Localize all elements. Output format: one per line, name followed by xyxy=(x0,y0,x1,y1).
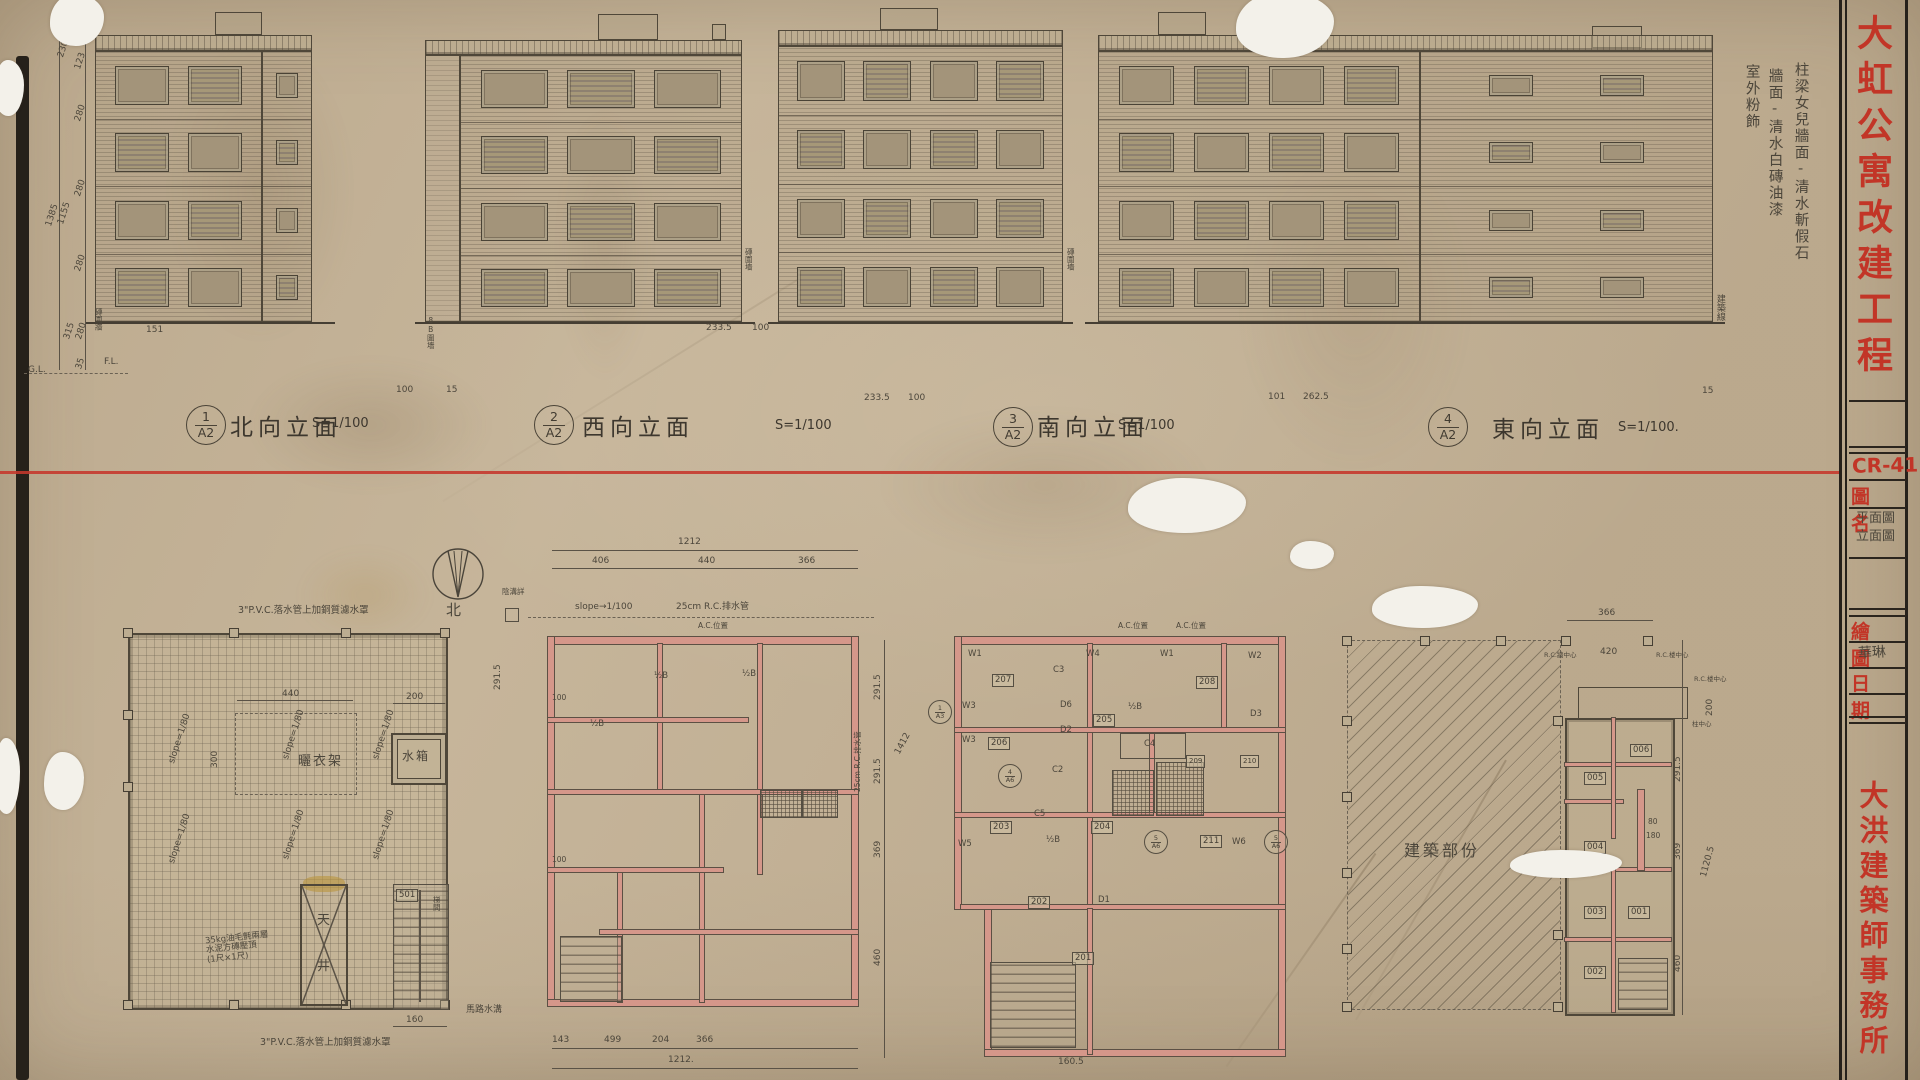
dim-text: 233.5 xyxy=(706,324,732,334)
wall-seg xyxy=(548,868,723,872)
column xyxy=(229,1000,239,1010)
door-label: D3 xyxy=(1250,710,1262,719)
bathroom xyxy=(802,790,838,818)
dim-text: 151 xyxy=(146,326,163,336)
section-mark: 1 A3 xyxy=(928,700,952,724)
window xyxy=(188,201,242,240)
dim-line xyxy=(393,703,445,704)
column xyxy=(123,628,133,638)
window xyxy=(1600,210,1644,231)
wall-type-label: ½B xyxy=(1128,703,1142,712)
parapet xyxy=(425,40,742,55)
mark-number: 1 xyxy=(195,410,217,425)
titleblock-line xyxy=(1849,446,1906,448)
facade xyxy=(460,55,742,322)
window xyxy=(797,267,845,306)
elevation-mark-1: 1 A2 xyxy=(186,405,226,445)
ac-note: A.C.位置 xyxy=(698,622,728,630)
paper-tear xyxy=(44,752,84,810)
section-sheet: A3 xyxy=(936,713,945,720)
ground-line xyxy=(415,322,755,324)
bathroom xyxy=(1112,770,1154,816)
window xyxy=(567,203,634,241)
wall-type-label: ½B xyxy=(742,670,756,679)
window-label: W4 xyxy=(1086,650,1100,659)
facade xyxy=(1098,51,1420,322)
drain-note: 25cm R.C.排水管 xyxy=(676,603,749,613)
dim-text: 100 xyxy=(552,856,566,864)
roof-note-top: 3"P.V.C.落水管上加銅質濾水罩 xyxy=(238,606,369,616)
window xyxy=(188,133,242,172)
wall-seg xyxy=(955,637,1285,644)
floor-level-label: F.L. xyxy=(104,358,118,368)
paper-tear xyxy=(1372,586,1478,628)
dim-line xyxy=(552,1048,858,1049)
window xyxy=(996,61,1044,100)
ground-line xyxy=(1085,322,1725,324)
window xyxy=(930,199,978,238)
window xyxy=(276,275,297,300)
window xyxy=(797,130,845,169)
brick-fence-label: 磚圍牆 xyxy=(94,308,102,331)
closet-label: C5 xyxy=(1034,810,1045,819)
dim-text: 200 xyxy=(1706,699,1716,716)
window xyxy=(654,136,721,174)
facade-floor xyxy=(96,52,261,120)
window xyxy=(996,267,1044,306)
wall-seg xyxy=(1088,909,1092,1054)
elevation-north xyxy=(95,12,312,322)
room-chip: 204 xyxy=(1091,821,1113,834)
dim-line xyxy=(393,1026,447,1027)
window xyxy=(1269,201,1323,240)
drawing-sheet: 107 123 230 280 280 280 1385 1155 315 28… xyxy=(0,0,1920,1080)
window xyxy=(481,136,548,174)
column xyxy=(123,782,133,792)
column xyxy=(440,628,450,638)
eave-note: slope→1/100 xyxy=(575,603,632,613)
room-chip: 203 xyxy=(990,821,1012,834)
dim-text: 101 xyxy=(1268,393,1285,403)
column xyxy=(1496,636,1506,646)
elevation-scale: S=1/100 xyxy=(775,418,832,433)
column xyxy=(229,628,239,638)
plan3-stair xyxy=(990,962,1076,1048)
column xyxy=(1342,716,1352,726)
column xyxy=(123,1000,133,1010)
dim-text: 406 xyxy=(592,557,609,567)
plan2-stair xyxy=(560,936,622,1002)
wall-seg xyxy=(1565,763,1671,766)
wall-seg xyxy=(955,728,1285,732)
facade-floor xyxy=(1099,187,1419,255)
window xyxy=(1119,268,1173,307)
room-chip: 202 xyxy=(1028,896,1050,909)
window xyxy=(654,269,721,307)
dim-text: 460 xyxy=(874,949,884,966)
facade xyxy=(95,51,262,322)
room-chip: 210 xyxy=(1240,755,1259,768)
roof-structure xyxy=(1158,12,1206,35)
window xyxy=(115,268,169,307)
dim-text: 460 xyxy=(1674,955,1684,972)
roof-structure xyxy=(880,8,938,30)
titleblock-line xyxy=(1849,716,1906,718)
drawing-name-label: 圖名 xyxy=(1851,482,1903,536)
dim-text: 1120.5 xyxy=(1700,846,1718,879)
dim-text: 300 xyxy=(211,751,221,768)
elevation-title-east: 東向立面 xyxy=(1492,410,1604,444)
dim-text: 369 xyxy=(874,841,884,858)
window xyxy=(115,133,169,172)
closet-label: C4 xyxy=(1144,740,1155,749)
date-label: 日期 xyxy=(1851,669,1903,723)
dim-text: 440 xyxy=(698,557,715,567)
mark-number: 2 xyxy=(543,410,565,425)
facade-floor xyxy=(263,255,311,322)
column xyxy=(1342,868,1352,878)
plan5-stair xyxy=(1618,958,1668,1010)
drawing-number: CR-411 xyxy=(1852,453,1920,476)
dim-text: 280 xyxy=(75,322,90,341)
wall-type-label: ½B xyxy=(1046,836,1060,845)
wall-seg xyxy=(955,637,961,909)
dim-text: 420 xyxy=(1600,648,1617,658)
window xyxy=(863,130,911,169)
window xyxy=(276,73,297,98)
window xyxy=(276,140,297,165)
wall-seg xyxy=(985,1050,1285,1056)
elevation-mark-4: 4 A2 xyxy=(1428,407,1468,447)
dim-text: 366 xyxy=(1598,609,1615,619)
mark-sheet: A2 xyxy=(546,426,563,440)
light-well xyxy=(300,884,348,1006)
dim-text: 366 xyxy=(696,1036,713,1046)
room-chip: 006 xyxy=(1630,744,1652,757)
window xyxy=(1344,268,1398,307)
wall-seg xyxy=(852,637,858,1005)
building-line-label: 建築線 xyxy=(1714,294,1724,321)
titleblock-border xyxy=(1905,0,1908,1080)
north-label: 北 xyxy=(446,602,461,619)
door-label: D6 xyxy=(1060,701,1072,710)
dim-text: 291.5 xyxy=(1674,756,1684,782)
wall-seg xyxy=(1612,718,1615,838)
wall-seg xyxy=(700,790,704,1002)
finish-note-1: 柱梁女兒牆面-清水斬假石 xyxy=(1792,62,1809,292)
eave-dash xyxy=(528,617,874,618)
road-gutter-label: 馬路水溝 xyxy=(466,1006,502,1016)
room-chip: 002 xyxy=(1584,966,1606,979)
window-label: W2 xyxy=(1248,652,1262,661)
rc-label: R.C.牆中心 xyxy=(1544,652,1576,659)
project-title: 大虹公寓改建工程 xyxy=(1853,14,1889,382)
dim-text: 100 xyxy=(552,694,566,702)
room-chip: 001 xyxy=(1628,906,1650,919)
paper-tear xyxy=(1128,478,1246,533)
facade-floor xyxy=(1421,52,1712,120)
column xyxy=(123,710,133,720)
gutter-detail-box xyxy=(505,608,519,622)
ac-note: A.C.位置 xyxy=(1118,622,1148,630)
dim-text: 233.5 xyxy=(864,394,890,404)
dim-text: 35 xyxy=(75,357,88,371)
ground-line xyxy=(85,322,335,324)
rc-label: R.C.楼中心 xyxy=(1694,676,1726,683)
window xyxy=(115,66,169,105)
titleblock-line xyxy=(1849,479,1906,481)
dim-text: 15 xyxy=(1702,387,1713,397)
column xyxy=(1420,636,1430,646)
dim-line xyxy=(59,20,60,370)
window xyxy=(276,208,297,233)
titleblock-border xyxy=(1839,0,1842,1080)
wall-seg xyxy=(548,637,858,644)
elevation-east xyxy=(1098,12,1713,322)
column xyxy=(1342,636,1352,646)
roof-structure xyxy=(712,24,726,40)
facade-floor xyxy=(461,189,741,256)
window xyxy=(996,199,1044,238)
column xyxy=(1342,944,1352,954)
facade-floor xyxy=(1099,120,1419,188)
facade-floor xyxy=(1421,255,1712,322)
facade xyxy=(778,46,1063,322)
wall-seg xyxy=(1222,644,1226,732)
dim-text: 1212 xyxy=(678,538,701,548)
window xyxy=(481,70,548,108)
mark-number: 3 xyxy=(1002,412,1024,427)
rear-wing xyxy=(1420,51,1713,322)
dim-text: 160 xyxy=(406,1016,423,1026)
facade-floor xyxy=(461,123,741,190)
window xyxy=(1269,133,1323,172)
window-label: W3 xyxy=(962,702,976,711)
ac-note: A.C.位置 xyxy=(1176,622,1206,630)
parapet xyxy=(1098,35,1713,51)
window xyxy=(1119,201,1173,240)
window xyxy=(1194,201,1248,240)
compass-icon xyxy=(432,548,484,600)
titleblock-line xyxy=(1849,693,1906,695)
window xyxy=(1489,75,1533,96)
facade-floor xyxy=(779,185,1062,254)
elevation-west xyxy=(425,14,742,322)
dim-text: 180 xyxy=(1646,832,1660,840)
roof-structure xyxy=(215,12,262,35)
dim-line xyxy=(552,1068,858,1069)
firm-name: 大洪建築師事務所 xyxy=(1857,780,1886,1060)
mark-sheet: A2 xyxy=(1440,428,1457,442)
facade-floor xyxy=(96,255,261,322)
dim-text: 100 xyxy=(752,324,769,334)
room-chip: 206 xyxy=(988,737,1010,750)
drain-note: 25cm R.C.排水管 xyxy=(854,731,862,792)
titleblock-line xyxy=(1849,507,1906,509)
drying-rack-label: 曬衣架 xyxy=(298,755,343,769)
drawn-by-signature: 華琳 xyxy=(1858,645,1887,662)
dim-text: 1212. xyxy=(668,1056,694,1066)
titleblock-line xyxy=(1849,608,1906,610)
dim-line xyxy=(85,20,86,370)
facade-floor xyxy=(1099,255,1419,322)
room-chip: 209 xyxy=(1186,755,1205,768)
dim-text: 280 xyxy=(74,179,89,198)
section-sheet: A6 xyxy=(1006,777,1015,784)
column xyxy=(1553,716,1563,726)
window xyxy=(1119,133,1173,172)
facade-floor xyxy=(461,256,741,322)
dim-text: 15 xyxy=(446,386,457,396)
room-chip: 211 xyxy=(1200,835,1222,848)
finish-note-2: 牆面-清水白磚油漆 xyxy=(1766,68,1783,268)
window xyxy=(1194,268,1248,307)
window xyxy=(930,130,978,169)
dim-line xyxy=(884,640,885,1058)
facade-floor xyxy=(263,187,311,255)
window-label: W5 xyxy=(958,840,972,849)
window xyxy=(481,269,548,307)
label-char: 圖名 xyxy=(1851,482,1903,536)
dim-text: 291.5 xyxy=(874,674,884,700)
elevation-title-west: 西向立面 xyxy=(582,408,694,442)
titleblock-line xyxy=(1849,722,1906,724)
window-label: W3 xyxy=(962,736,976,745)
wall-seg xyxy=(1638,790,1644,870)
facade-floor xyxy=(263,52,311,120)
facade-floor xyxy=(1099,52,1419,120)
window xyxy=(115,201,169,240)
col-center-label: 柱中心 xyxy=(1692,721,1712,728)
light-well-label: 井 xyxy=(317,960,330,974)
dim-text: 200 xyxy=(406,693,423,703)
closet-label: C2 xyxy=(1052,766,1063,775)
column xyxy=(1342,792,1352,802)
window xyxy=(1269,66,1323,105)
dim-line xyxy=(552,568,858,569)
side-wing xyxy=(425,55,460,322)
room-chip: 205 xyxy=(1093,714,1115,727)
window xyxy=(930,61,978,100)
room-chip: 201 xyxy=(1072,952,1094,965)
elevation-mark-3: 3 A2 xyxy=(993,407,1033,447)
dim-text: 369 xyxy=(1674,843,1684,860)
window xyxy=(1344,133,1398,172)
window xyxy=(1269,268,1323,307)
column xyxy=(341,628,351,638)
dim-text: 280 xyxy=(74,104,89,123)
dim-text: 123 xyxy=(74,52,89,71)
window xyxy=(654,203,721,241)
dim-text: 291.5 xyxy=(494,664,504,690)
paper-tear xyxy=(1290,541,1334,569)
elevation-scale: S=1/100 xyxy=(1118,418,1175,433)
light-well-label: 天 xyxy=(317,914,330,928)
door-label: D1 xyxy=(1098,896,1110,905)
titleblock-line xyxy=(1849,557,1906,559)
north-compass xyxy=(432,548,484,600)
binding-strip xyxy=(16,56,29,1080)
dim-text: 143 xyxy=(552,1036,569,1046)
titleblock-line xyxy=(1849,641,1906,643)
wall-seg xyxy=(1088,644,1092,906)
ground-level-label: G.L. xyxy=(28,366,46,376)
gl-dash xyxy=(24,373,128,374)
elevation-mark-2: 2 A2 xyxy=(534,405,574,445)
window xyxy=(1344,66,1398,105)
window xyxy=(930,267,978,306)
mark-sheet: A2 xyxy=(1005,428,1022,442)
wall-type-label: ½B xyxy=(590,720,604,729)
window xyxy=(1489,277,1533,298)
room-chip: 501 xyxy=(396,889,418,902)
window xyxy=(481,203,548,241)
wall-seg xyxy=(548,718,748,722)
dim-text: 291.5 xyxy=(874,758,884,784)
facade-floor xyxy=(263,120,311,188)
dim-text: 160.5 xyxy=(1058,1058,1084,1068)
closet-label: C3 xyxy=(1053,666,1064,675)
parapet xyxy=(778,30,1063,46)
demolition-hatch-area xyxy=(1347,640,1561,1010)
window xyxy=(1119,66,1173,105)
room-chip: 208 xyxy=(1196,676,1218,689)
fence-note: 磚圍墻 xyxy=(1066,248,1074,271)
facade-floor xyxy=(779,116,1062,185)
section-sheet: A6 xyxy=(1272,843,1281,850)
window xyxy=(1489,142,1533,163)
window xyxy=(567,136,634,174)
stair-tower xyxy=(262,51,312,322)
room-chip: 207 xyxy=(992,674,1014,687)
dim-text: 366 xyxy=(798,557,815,567)
dim-line xyxy=(1567,620,1653,621)
fence-note: 磚圍墻 xyxy=(744,248,752,271)
room-chip: 003 xyxy=(1584,906,1606,919)
window xyxy=(188,66,242,105)
window xyxy=(863,61,911,100)
ground-line xyxy=(768,322,1073,324)
wall-seg xyxy=(1565,938,1671,941)
dim-text: 80 xyxy=(1648,818,1658,826)
dim-text: 499 xyxy=(604,1036,621,1046)
facade-floor xyxy=(779,253,1062,321)
titleblock-line xyxy=(1849,400,1906,402)
dim-text: 262.5 xyxy=(1303,393,1329,403)
roof-slab-box xyxy=(1578,687,1688,719)
dim-text: 100 xyxy=(396,386,413,396)
mark-number: 4 xyxy=(1437,412,1459,427)
mark-sheet: A2 xyxy=(198,426,215,440)
water-tank-label: 水箱 xyxy=(402,750,430,763)
wall-seg xyxy=(600,930,858,934)
label-char: 日期 xyxy=(1851,669,1903,723)
roof-structure xyxy=(598,14,658,40)
dim-text: 204 xyxy=(652,1036,669,1046)
column xyxy=(1553,1002,1563,1012)
red-divider-line xyxy=(0,471,1839,474)
section-sheet: A6 xyxy=(1152,843,1161,850)
window-label: W6 xyxy=(1232,838,1246,847)
window xyxy=(654,70,721,108)
section-mark: 5 A6 xyxy=(1144,830,1168,854)
window-label: W1 xyxy=(1160,650,1174,659)
facade-floor xyxy=(1421,120,1712,188)
titleblock-border xyxy=(1845,0,1847,1080)
column xyxy=(1342,1002,1352,1012)
bathroom xyxy=(760,790,802,818)
dim-line xyxy=(237,700,353,701)
